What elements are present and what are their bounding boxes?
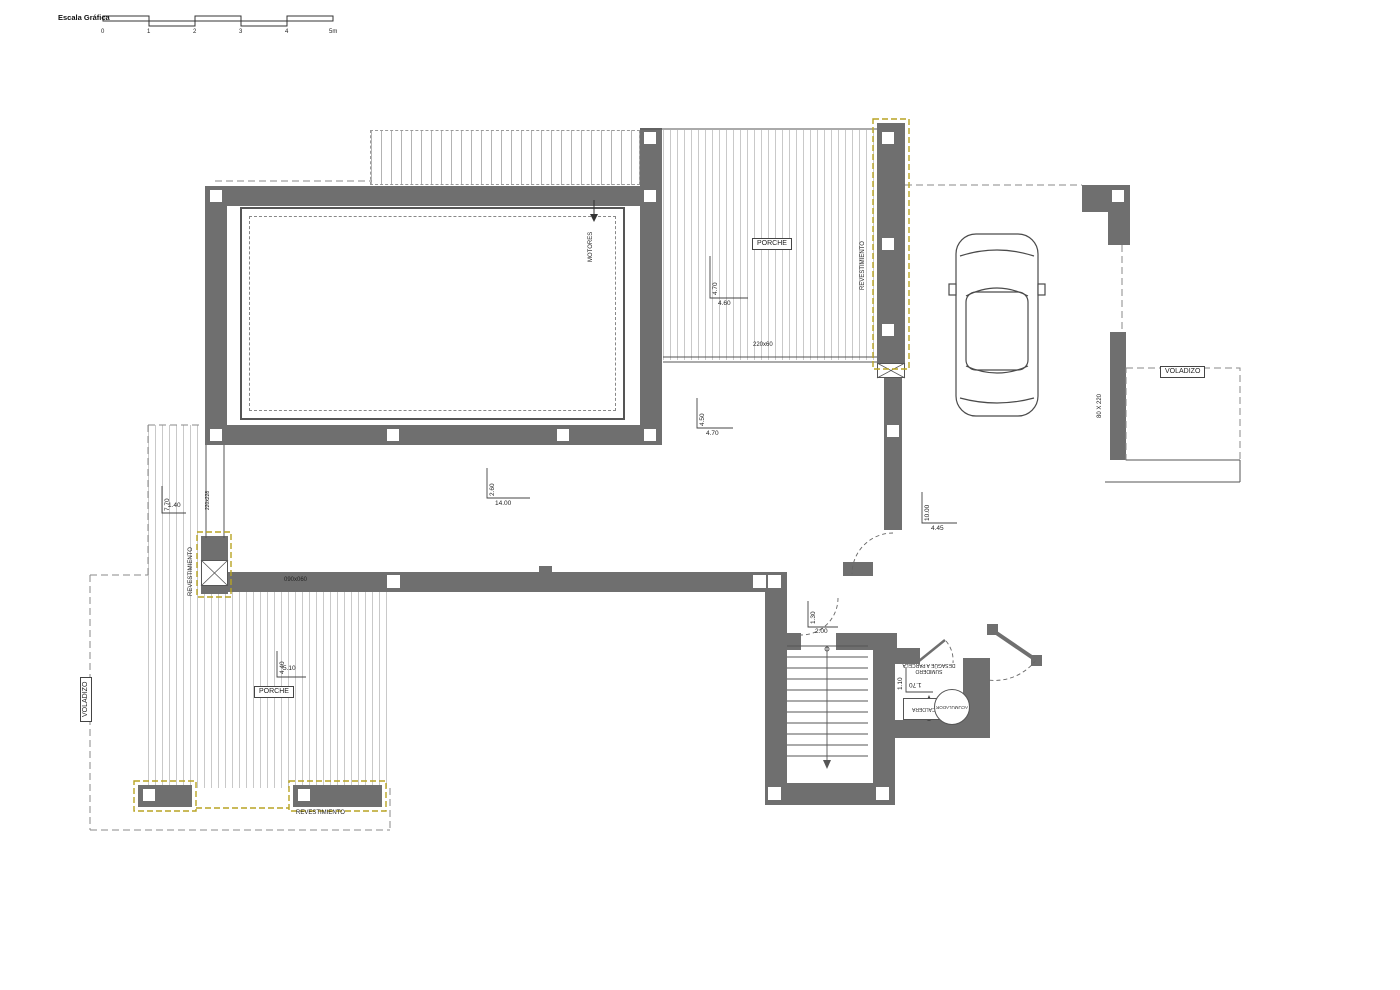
scale-tick-2: 2 [193, 29, 196, 36]
pillar [767, 786, 782, 801]
entry-door-jamb [987, 624, 998, 635]
scale-tick-5: 5m [329, 29, 337, 36]
scale-tick-3: 3 [239, 29, 242, 36]
pillar [386, 574, 401, 589]
window-sill-symbol [877, 363, 905, 378]
window-size-left: 220x228 [206, 491, 212, 510]
pillar [1111, 189, 1125, 203]
entry-door-jamb [1031, 655, 1042, 666]
stair-wall-right [873, 633, 895, 805]
pillar [209, 189, 223, 203]
dim-salon-h: 4.70 [706, 430, 719, 437]
stair-treads [787, 646, 868, 767]
scale-tick-0: 0 [101, 29, 104, 36]
caldera-label: CALDERA [912, 706, 936, 712]
garage-wall-right [1110, 332, 1126, 460]
porch-top-label: PORCHE [752, 238, 792, 250]
dim-utility-h: 1.70 [909, 681, 922, 688]
dim-salon-v: 4.50 [699, 413, 706, 426]
stair-direction-arrow [823, 760, 831, 769]
porch-left-label: PORCHE [254, 686, 294, 698]
door-leaves [919, 630, 1036, 661]
window-size-top: 220x60 [753, 342, 773, 349]
scale-tick-1: 1 [147, 29, 150, 36]
stair-wall-left [765, 572, 787, 805]
pillar [209, 428, 223, 442]
dim-entry-v: 1.30 [810, 611, 817, 624]
pillar [881, 323, 895, 337]
pillar [886, 424, 900, 438]
interior-wall-right [884, 378, 902, 530]
connector-wall-upper [201, 536, 228, 562]
column-marker [539, 566, 552, 579]
pillar [643, 131, 657, 145]
dim-porch-top-h: 4.60 [718, 300, 731, 307]
entry-wall-stub-left [787, 633, 801, 650]
revestimiento-bottom-label: REVESTIMIENTO [296, 810, 345, 817]
voladizo-right-label: VOLADIZO [1160, 366, 1205, 378]
pool-inner-rim [249, 216, 616, 411]
sumidero-line2: DESAGÜE A PARCELA [903, 663, 956, 669]
door-size-right: 80 X 220 [1097, 394, 1104, 418]
pillar [643, 189, 657, 203]
scale-bar-title: Escala Gráfica [58, 14, 110, 22]
acumulador-label: ACUMULADOR [936, 705, 968, 710]
pillar [297, 788, 311, 802]
pillar [881, 237, 895, 251]
floor-plan-canvas: Escala Gráfica 0 1 2 3 4 5m MOTORES PORC… [0, 0, 1400, 990]
dim-porch-top-v: 4.70 [712, 282, 719, 295]
dim-hall-h: 4.45 [931, 525, 944, 532]
dim-utility-v: 1.10 [897, 677, 904, 690]
motores-label: MOTORES [588, 232, 595, 262]
pillar [643, 428, 657, 442]
porch-left-strip [148, 425, 203, 575]
pillar [142, 788, 156, 802]
dim-main-v: 2.60 [489, 483, 496, 496]
sumidero-line1: SUMIDERO [916, 668, 943, 674]
scale-bar [103, 16, 333, 26]
scale-tick-4: 4 [285, 29, 288, 36]
pillar [875, 786, 890, 801]
revestimiento-left-label: REVESTIMIENTO [188, 547, 195, 596]
pillar [386, 428, 400, 442]
pool-wall-bottom [205, 425, 662, 445]
pillar [767, 574, 782, 589]
dim-main-h: 14.00 [495, 500, 511, 507]
pool-wall-top [205, 186, 662, 206]
pool-wall-right [640, 128, 662, 445]
pool-wall-left [205, 186, 227, 445]
dim-hall-v: 10.00 [924, 505, 931, 521]
dim-porchL-top-h: 1.40 [168, 502, 181, 509]
entry-wall [836, 633, 897, 650]
dim-entry-h: 2.00 [815, 628, 828, 635]
connector-window-symbol [201, 560, 228, 586]
porch-left-decking [148, 575, 390, 788]
pillar [881, 131, 895, 145]
revestimiento-top-label: REVESTIMIENTO [860, 241, 867, 290]
voladizo-left-label: VOLADIZO [80, 677, 92, 722]
garage-wall-corner [1108, 212, 1130, 245]
acumulador-circle: ACUMULADOR [934, 689, 970, 725]
entry-wall-stub [843, 562, 873, 576]
dim-porchL-h: 5.10 [283, 665, 296, 672]
pillar [752, 574, 767, 589]
pillar [556, 428, 570, 442]
window-size-bottom: 090x060 [284, 577, 307, 584]
sumidero-label: SUMIDERO DESAGÜE A PARCELA [900, 662, 958, 673]
pergola-hatch [370, 130, 640, 185]
car-icon [949, 234, 1045, 416]
